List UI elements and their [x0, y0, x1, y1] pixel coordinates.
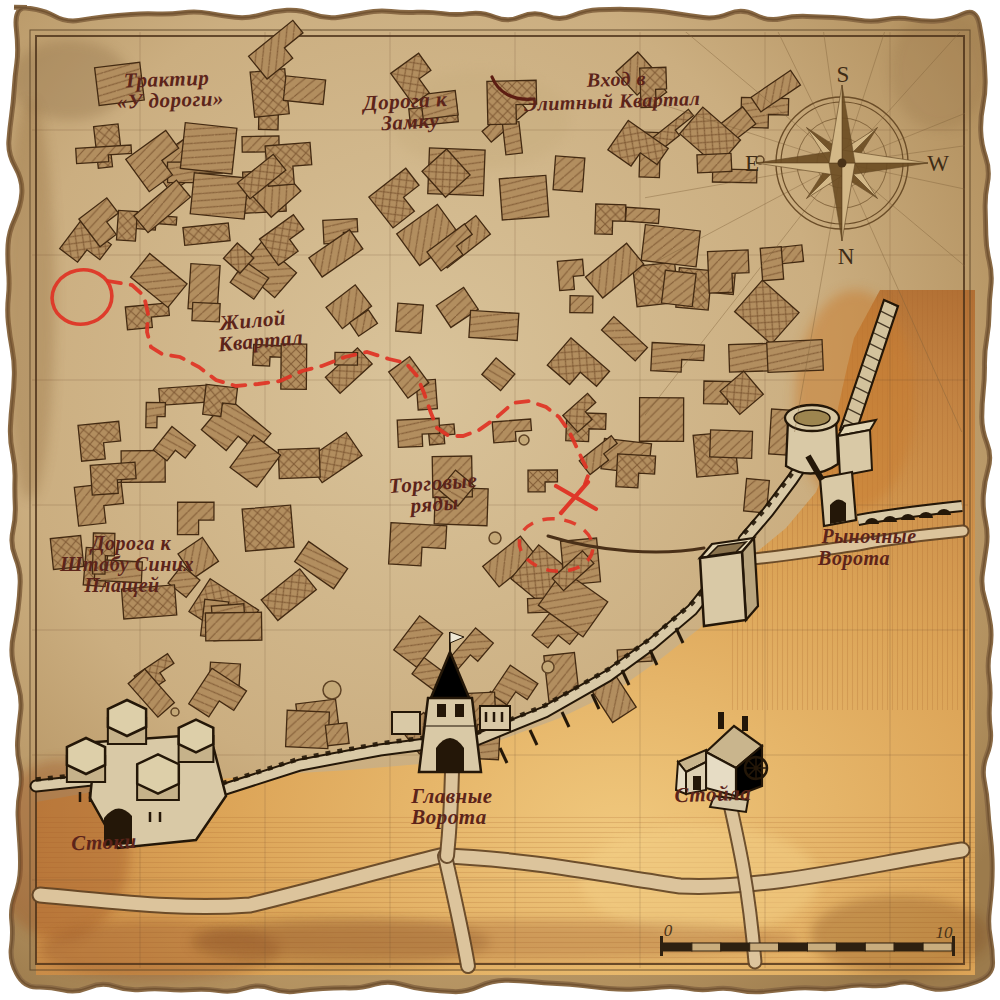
svg-text:Замку: Замку	[380, 108, 440, 135]
svg-text:Штабу Синих: Штабу Синих	[59, 553, 194, 576]
scale-end: 10	[936, 923, 954, 942]
svg-text:ряды: ряды	[408, 490, 460, 517]
label-sewers: Стоки	[71, 829, 137, 855]
mill-wheel-icon	[745, 757, 767, 779]
well-marker	[323, 681, 341, 699]
svg-text:Стоки: Стоки	[71, 829, 137, 855]
city-map[interactable]: Трактир «У дороги» Дорога к Замку Вход в…	[0, 0, 1000, 1000]
well-marker	[542, 661, 554, 673]
label-main-gate: Главные Ворота	[410, 784, 492, 829]
main-gate-arch	[436, 738, 464, 772]
svg-text:Плащей: Плащей	[83, 574, 159, 597]
well-marker	[171, 708, 179, 716]
svg-text:Вход в: Вход в	[585, 67, 646, 91]
compass-west-letter: W	[927, 151, 949, 176]
label-stables: Стойла	[674, 781, 752, 808]
compass-north-letter: N	[838, 244, 855, 269]
svg-text:Ворота: Ворота	[410, 805, 486, 829]
map-artwork	[0, 0, 1000, 992]
market-gate-tower	[700, 538, 758, 626]
svg-text:Дорога к: Дорога к	[89, 532, 172, 555]
compass-south-letter: S	[837, 62, 850, 87]
compass-east-letter: E	[745, 151, 759, 176]
label-tavern: Трактир «У дороги»	[116, 65, 225, 114]
svg-text:Стойла: Стойла	[674, 781, 752, 808]
well-marker	[519, 435, 529, 445]
svg-text:«У дороги»: «У дороги»	[116, 86, 224, 114]
game-map-screen: Трактир «У дороги» Дорога к Замку Вход в…	[0, 0, 1000, 1000]
svg-text:Ворота: Ворота	[817, 547, 890, 570]
svg-text:Рыночные: Рыночные	[820, 525, 916, 547]
scale-start: 0	[664, 921, 673, 940]
well-marker	[489, 532, 501, 544]
